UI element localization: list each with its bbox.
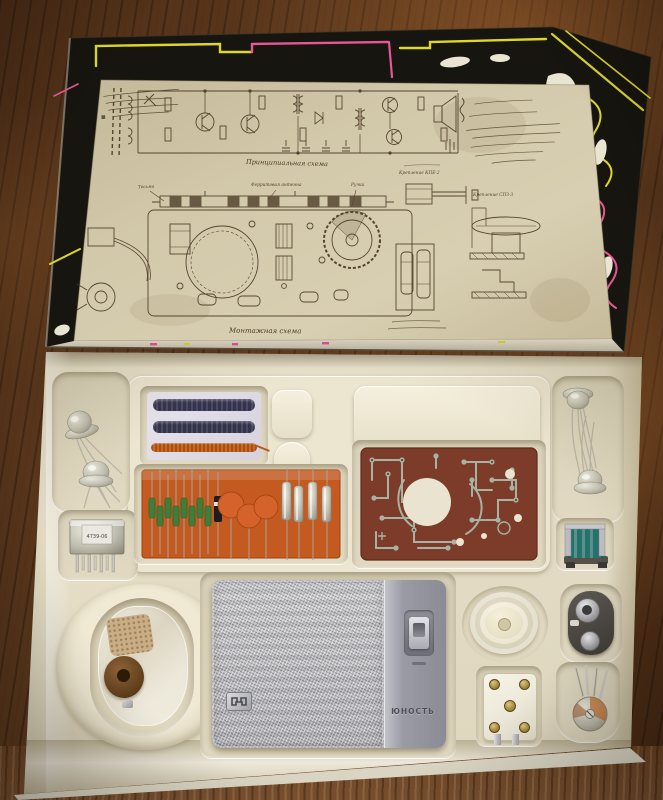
box-lid	[0, 0, 663, 370]
caption-assembly-diagram: Монтажная схема	[229, 328, 301, 336]
lid-bottom-edge	[46, 339, 624, 352]
tray-vignette	[24, 352, 642, 794]
caption-circuit-diagram: Принципиальная схема	[246, 159, 328, 168]
caption-kpe-mount: Крепление КПЕ-2	[399, 172, 440, 176]
photo-scene: Принципиальная схема Монтажная схема Тес…	[0, 0, 663, 800]
label-braid: Тесьма	[138, 186, 154, 191]
label-knob: Ручка	[351, 184, 364, 188]
caption-spz-mount: Крепление СПЗ-3	[473, 194, 513, 198]
label-ferrite-antenna: Ферритовая антенна	[251, 184, 302, 188]
schematic-sheet	[74, 80, 612, 341]
